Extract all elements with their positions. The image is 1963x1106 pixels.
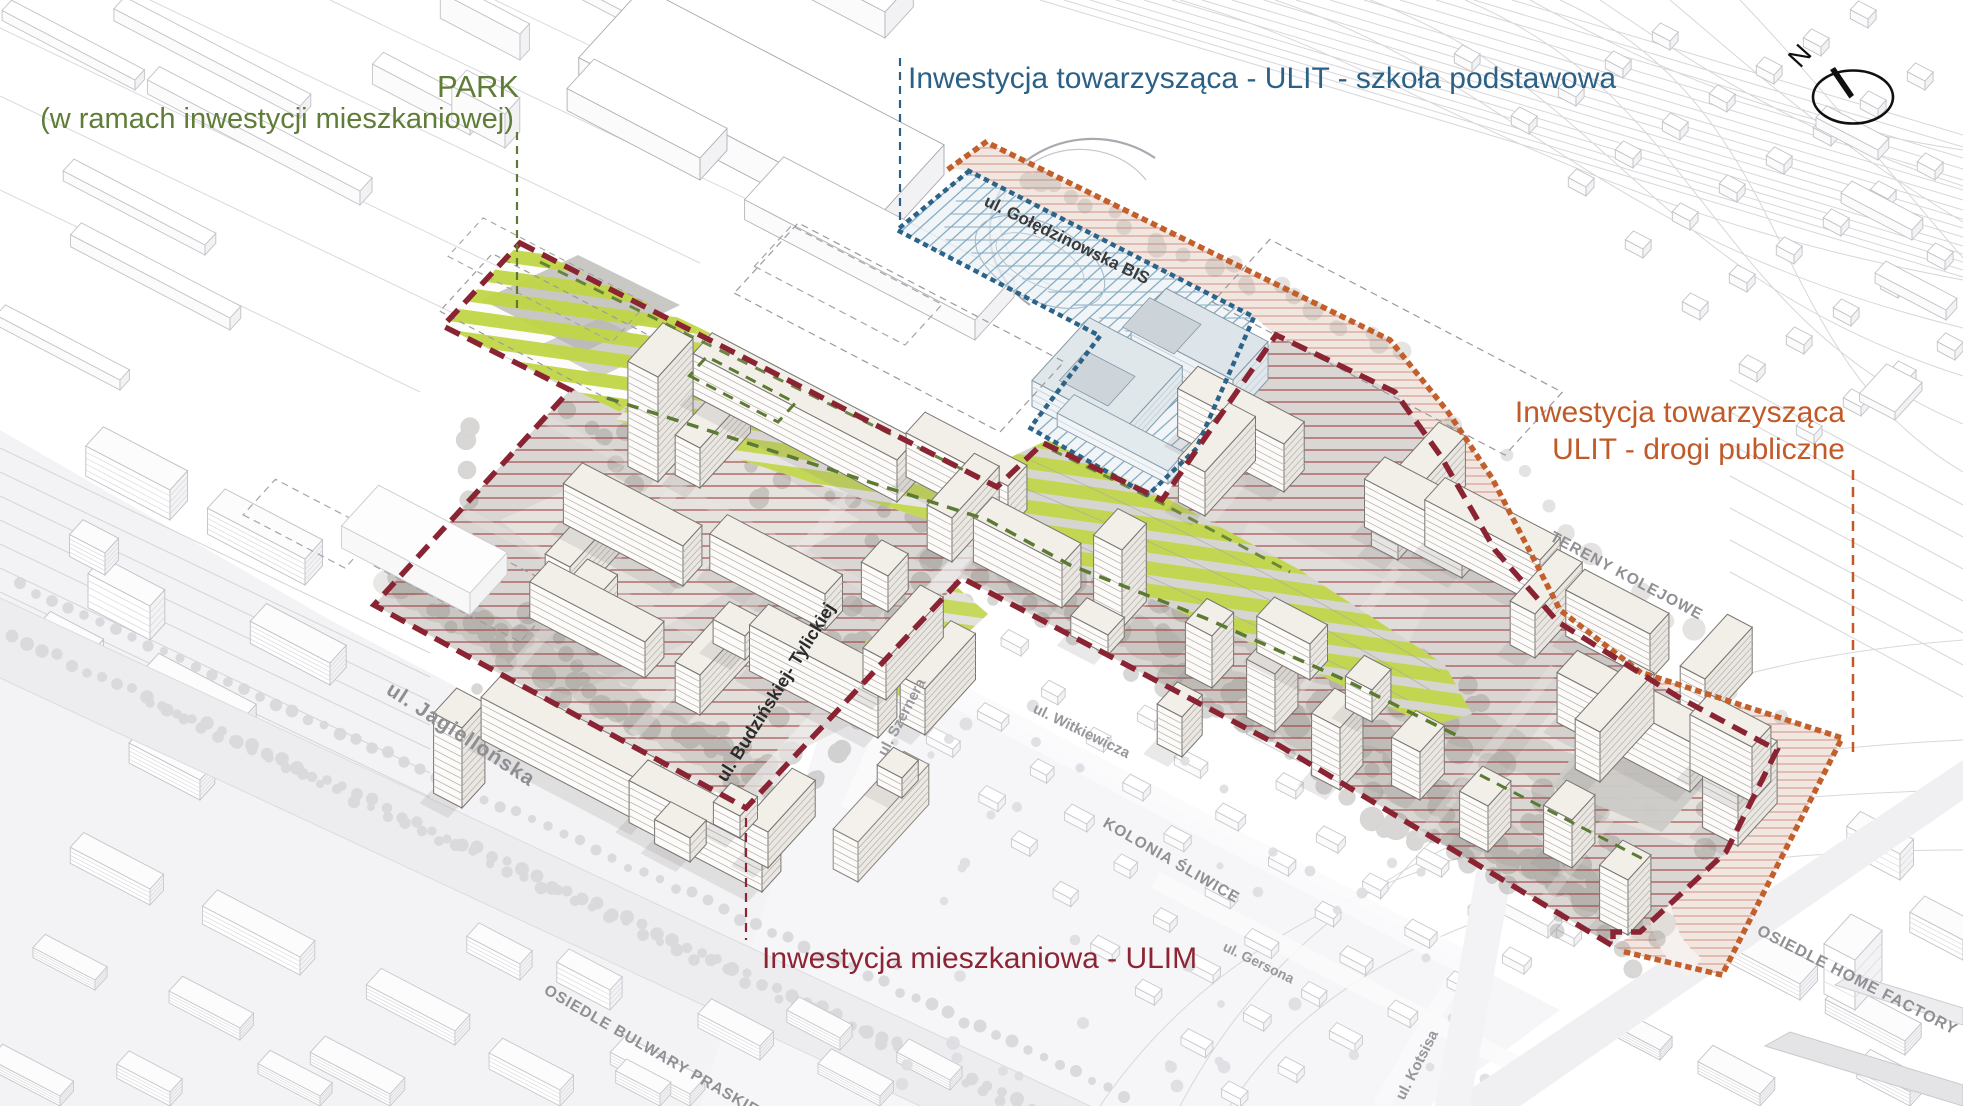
svg-text:(w ramach inwestycji mieszkani: (w ramach inwestycji mieszkaniowej): [40, 103, 514, 135]
svg-text:Inwestycja towarzysząca: Inwestycja towarzysząca: [1515, 396, 1845, 429]
svg-text:Inwestycja mieszkaniowa - ULIM: Inwestycja mieszkaniowa - ULIM: [762, 942, 1197, 975]
svg-text:ULIT - drogi publiczne: ULIT - drogi publiczne: [1552, 433, 1845, 466]
svg-text:Inwestycja towarzysząca - ULIT: Inwestycja towarzysząca - ULIT - szkoła …: [908, 62, 1616, 95]
svg-text:PARK: PARK: [437, 69, 519, 104]
